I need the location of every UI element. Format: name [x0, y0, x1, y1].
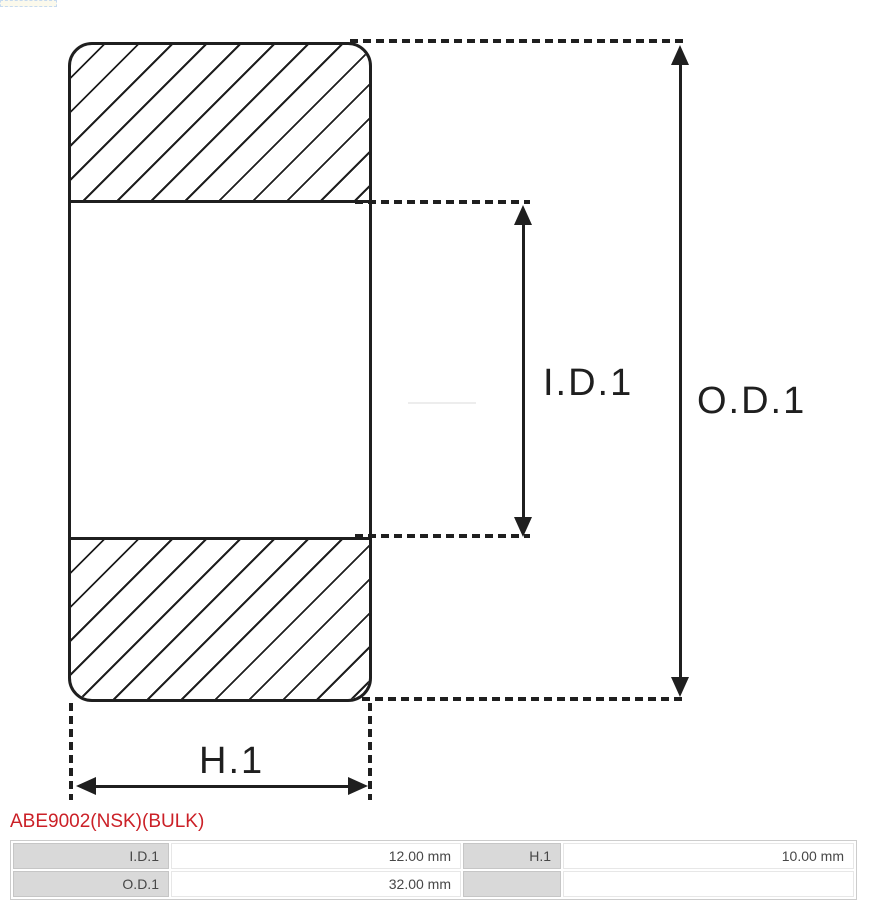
part-number-title: ABE9002(NSK)(BULK)	[10, 811, 204, 834]
od1-label: O.D.1	[697, 382, 806, 420]
spec-table: I.D.1 12.00 mm H.1 10.00 mm O.D.1 32.00 …	[10, 840, 857, 900]
arrowhead-down-icon	[514, 517, 532, 537]
id1-dimension-line	[522, 222, 525, 518]
centerline-artifact	[408, 402, 476, 404]
bearing-ring-bottom-hatch	[71, 537, 369, 699]
h1-label: H.1	[199, 742, 264, 780]
spec-table-row: O.D.1 32.00 mm	[13, 871, 854, 897]
extension-line-h-right	[368, 703, 372, 800]
spec-label-cell: H.1	[463, 843, 561, 869]
extension-line-h-left	[69, 703, 73, 800]
spec-value-cell: 32.00 mm	[171, 871, 461, 897]
id1-label: I.D.1	[543, 364, 633, 402]
spec-label-cell: O.D.1	[13, 871, 169, 897]
h1-dimension-line	[93, 785, 351, 788]
spec-value-cell: 12.00 mm	[171, 843, 461, 869]
bearing-cross-section	[68, 42, 372, 702]
spec-value-cell: 10.00 mm	[563, 843, 854, 869]
top-left-artifact	[0, 0, 57, 7]
spec-table-row: I.D.1 12.00 mm H.1 10.00 mm	[13, 843, 854, 869]
spec-value-cell	[563, 871, 854, 897]
od1-dimension-line	[679, 62, 682, 680]
extension-line-id-bottom	[355, 534, 530, 538]
extension-line-id-top	[355, 200, 530, 204]
arrowhead-down-icon	[671, 677, 689, 697]
spec-label-cell	[463, 871, 561, 897]
spec-label-cell: I.D.1	[13, 843, 169, 869]
extension-line-od-bottom	[362, 697, 686, 701]
bearing-ring-top-hatch	[71, 45, 369, 203]
arrowhead-right-icon	[348, 777, 368, 795]
page: I.D.1 O.D.1 H.1 ABE9002(NSK)(BULK) I.D.1…	[0, 0, 871, 913]
extension-line-od-top	[350, 39, 686, 43]
